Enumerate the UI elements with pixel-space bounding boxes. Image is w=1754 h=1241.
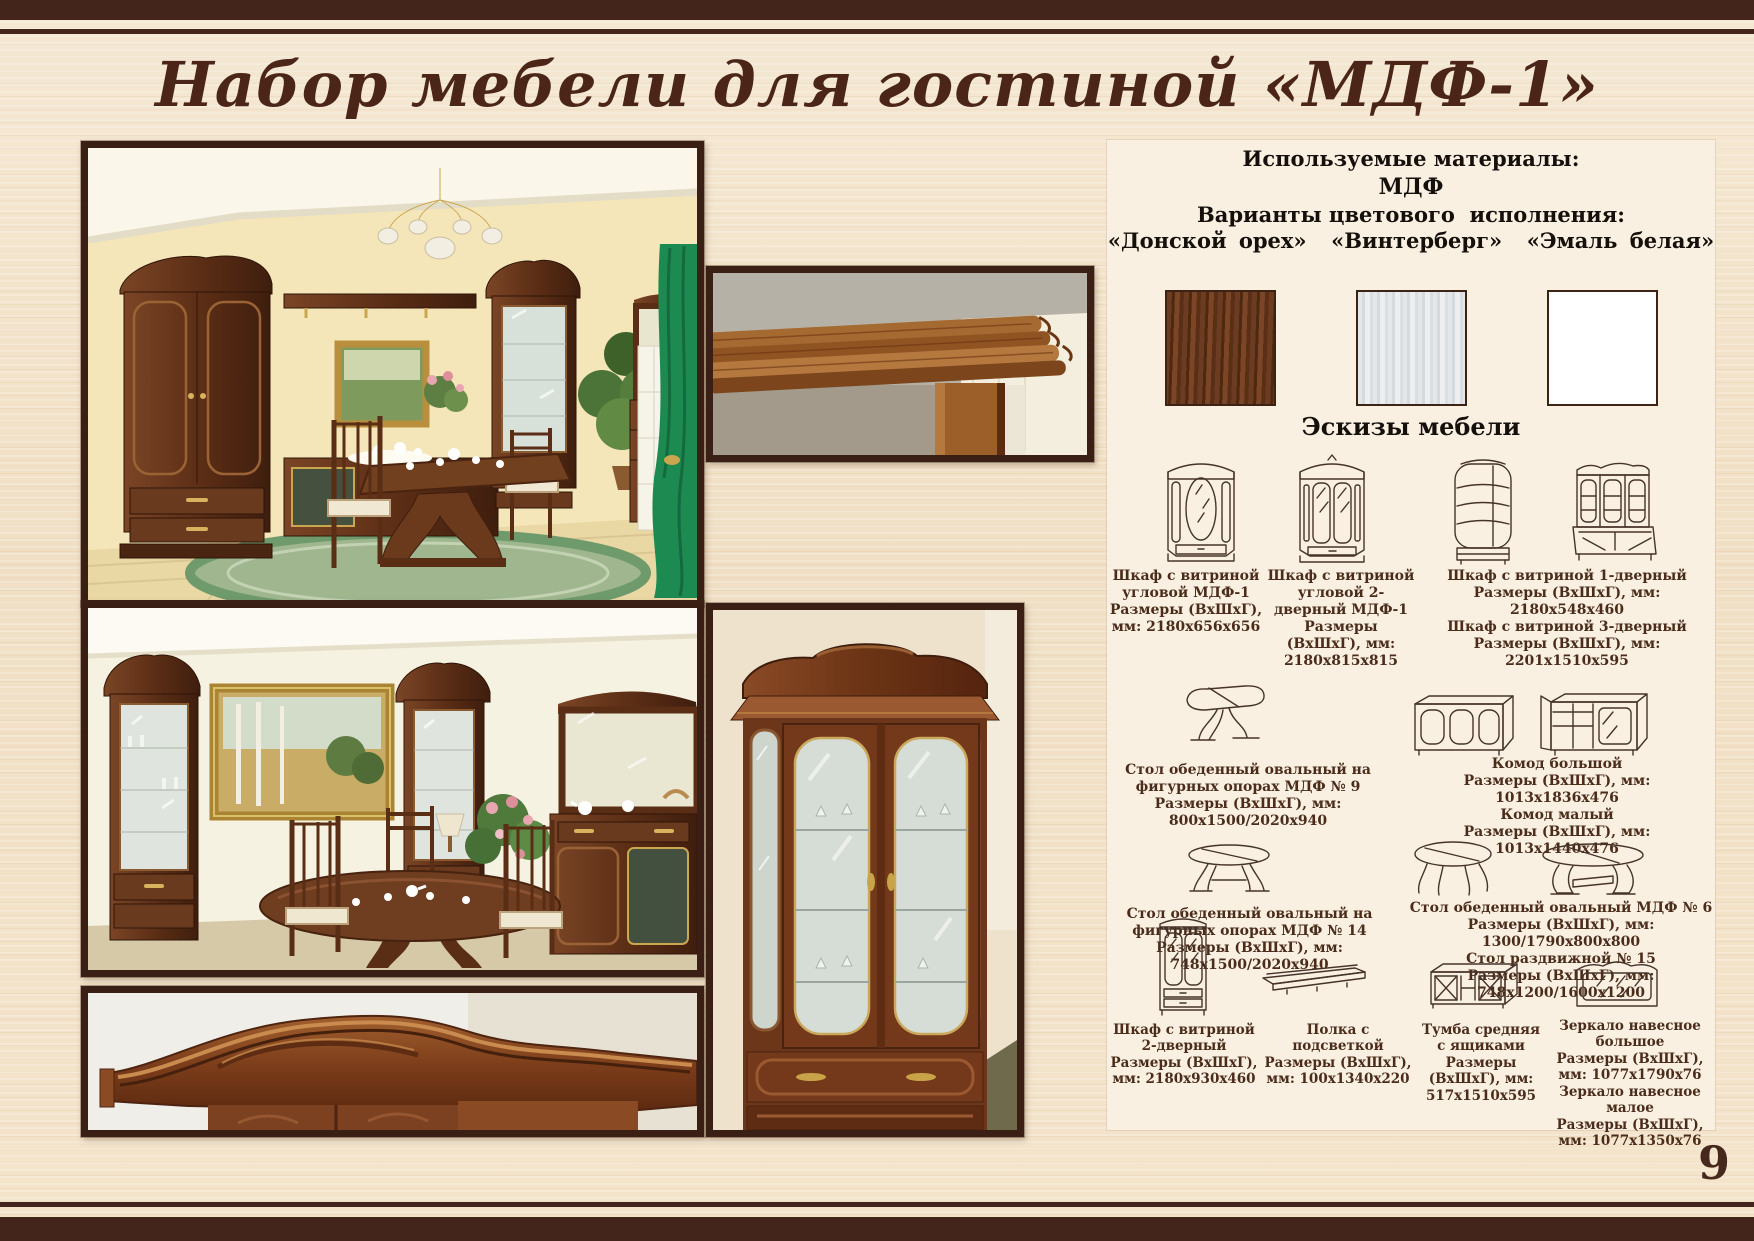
bottom-border-bar xyxy=(0,1217,1754,1241)
caption-name: Шкаф с витриной 3-дверный xyxy=(1419,619,1715,636)
caption-shelf: Полка с подсветкой Размеры (ВхШхГ), мм: … xyxy=(1263,1022,1413,1088)
caption-size: Размеры (ВхШхГ), мм: 2201х1510х595 xyxy=(1419,636,1715,670)
caption-name: Стол обеденный овальный на фигурных опор… xyxy=(1107,906,1392,940)
material-name: МДФ xyxy=(1107,174,1715,200)
sketch-komod-open xyxy=(1539,684,1651,760)
caption-mirrors: Зеркало навесное большое Размеры (ВхШхГ)… xyxy=(1545,1018,1715,1150)
sketch-table-mdf6 xyxy=(1407,838,1499,900)
corner-vitrine-left xyxy=(104,655,200,940)
color-swatch-row xyxy=(1107,290,1715,406)
sketch-vitrine-1door xyxy=(1447,454,1519,566)
caption-name: Полка с подсветкой xyxy=(1263,1022,1413,1055)
photo-living-room-2 xyxy=(81,601,704,977)
caption-vitrine-1-and-3-door: Шкаф с витриной 1-дверный Размеры (ВхШхГ… xyxy=(1419,568,1715,670)
caption-name: Тумба средняя с ящиками xyxy=(1419,1022,1543,1055)
photo-cornice-detail xyxy=(706,266,1094,462)
sketches-heading: Эскизы мебели xyxy=(1107,412,1715,441)
door-panels-below xyxy=(208,1101,638,1130)
materials-heading: Используемые материалы: xyxy=(1107,146,1715,171)
cabinet-detail-illustration xyxy=(713,610,1017,1130)
swatch-emal-belaya xyxy=(1547,290,1658,406)
swatch-vinterberg xyxy=(1356,290,1467,406)
caption-name: Стол обеденный овальный на фигурных опор… xyxy=(1107,762,1389,796)
bottom-border-line xyxy=(0,1202,1754,1207)
catalog-page: { "page": { "title": "Набор мебели для г… xyxy=(0,0,1754,1241)
sketch-shelf-with-light xyxy=(1257,962,1367,996)
caption-corner-wardrobe-2door: Шкаф с витриной угловой 2-дверный МДФ-1 … xyxy=(1267,568,1415,670)
living-room-1-illustration xyxy=(88,148,697,600)
photo-pediment-detail xyxy=(81,986,704,1137)
caption-name: Стол обеденный овальный МДФ № 6 xyxy=(1407,900,1715,917)
caption-name: Шкаф с витриной 2-дверный xyxy=(1109,1022,1259,1055)
sketch-table-15 xyxy=(1537,842,1649,900)
caption-table-mdf9: Стол обеденный овальный на фигурных опор… xyxy=(1107,762,1389,830)
caption-size: Размеры (ВхШхГ), мм: 1013х1836х476 xyxy=(1407,773,1707,807)
caption-name: Шкаф с витриной угловой МДФ-1 xyxy=(1107,568,1265,602)
living-room-2-illustration xyxy=(88,608,697,970)
caption-name: Шкаф с витриной угловой 2-дверный МДФ-1 xyxy=(1267,568,1415,619)
coat-rack xyxy=(284,294,476,308)
caption-size: Размеры (ВхШхГ), мм: 2180х815х815 xyxy=(1267,619,1415,670)
sketch-corner-wardrobe xyxy=(1162,452,1240,567)
caption-name: Шкаф с витриной 1-дверный xyxy=(1419,568,1715,585)
info-panel: Используемые материалы: МДФ Варианты цве… xyxy=(1107,140,1715,1130)
caption-size: Размеры (ВхШхГ), мм: 2180х930х460 xyxy=(1109,1055,1259,1088)
caption-size: Размеры (ВхШхГ), мм: 1300/1790х800х800 xyxy=(1407,917,1715,951)
caption-size: Размеры (ВхШхГ), мм: 2180х656х656 xyxy=(1107,602,1265,636)
pediment-detail-illustration xyxy=(88,993,697,1130)
caption-name: Зеркало навесное большое xyxy=(1545,1018,1715,1051)
top-border-line xyxy=(0,29,1754,34)
caption-tumba: Тумба средняя с ящиками Размеры (ВхШхГ),… xyxy=(1419,1022,1543,1104)
caption-size: Размеры (ВхШхГ), мм: 517х1510х595 xyxy=(1419,1055,1543,1104)
caption-size: Размеры (ВхШхГ), мм: 1077х1790х76 xyxy=(1545,1051,1715,1084)
sketch-tumba xyxy=(1425,958,1520,1014)
caption-size: Размеры (ВхШхГ), мм: 100х1340х220 xyxy=(1263,1055,1413,1088)
caption-vitrine-2door: Шкаф с витриной 2-дверный Размеры (ВхШхГ… xyxy=(1109,1022,1259,1088)
variants-heading: Варианты цветового исполнения: xyxy=(1107,202,1715,227)
photo-cabinet-detail xyxy=(706,603,1024,1137)
page-title: Набор мебели для гостиной «МДФ-1» xyxy=(0,48,1754,121)
landscape-painting xyxy=(214,688,390,816)
glass-doors xyxy=(783,724,979,1048)
swatch-donskoy-oreh xyxy=(1165,290,1276,406)
sketch-komod-big xyxy=(1407,688,1515,758)
caption-corner-wardrobe: Шкаф с витриной угловой МДФ-1 Размеры (В… xyxy=(1107,568,1265,636)
caption-name: Комод большой xyxy=(1407,756,1707,773)
caption-size: Размеры (ВхШхГ), мм: 2180х548х460 xyxy=(1419,585,1715,619)
wall-picture xyxy=(338,344,426,424)
page-number: 9 xyxy=(1698,1136,1730,1190)
variants-names: «Донской орех» «Винтерберг» «Эмаль белая… xyxy=(1107,228,1715,253)
sketch-vitrine-2door xyxy=(1152,912,1214,1020)
sketch-vitrine-3door xyxy=(1567,456,1657,566)
sideboard-with-mirror xyxy=(550,691,697,954)
caption-name: Зеркало навесное малое xyxy=(1545,1084,1715,1117)
cabinet-drawers xyxy=(747,1052,983,1130)
sketch-table-mdf14 xyxy=(1182,840,1277,898)
caption-size: Размеры (ВхШхГ), мм: 1077х1350х76 xyxy=(1545,1117,1715,1150)
sketch-mirror xyxy=(1569,954,1664,1012)
door-post xyxy=(935,383,1025,455)
sketch-table-mdf9 xyxy=(1177,680,1272,752)
wardrobe xyxy=(120,256,272,558)
top-border-bar xyxy=(0,0,1754,20)
caption-size: Размеры (ВхШхГ), мм: 800х1500/2020х940 xyxy=(1107,796,1389,830)
photo-living-room-1 xyxy=(81,141,704,607)
sketch-corner-wardrobe-2door xyxy=(1292,450,1372,568)
caption-name: Комод малый xyxy=(1407,807,1707,824)
cornice-detail-illustration xyxy=(713,273,1087,455)
